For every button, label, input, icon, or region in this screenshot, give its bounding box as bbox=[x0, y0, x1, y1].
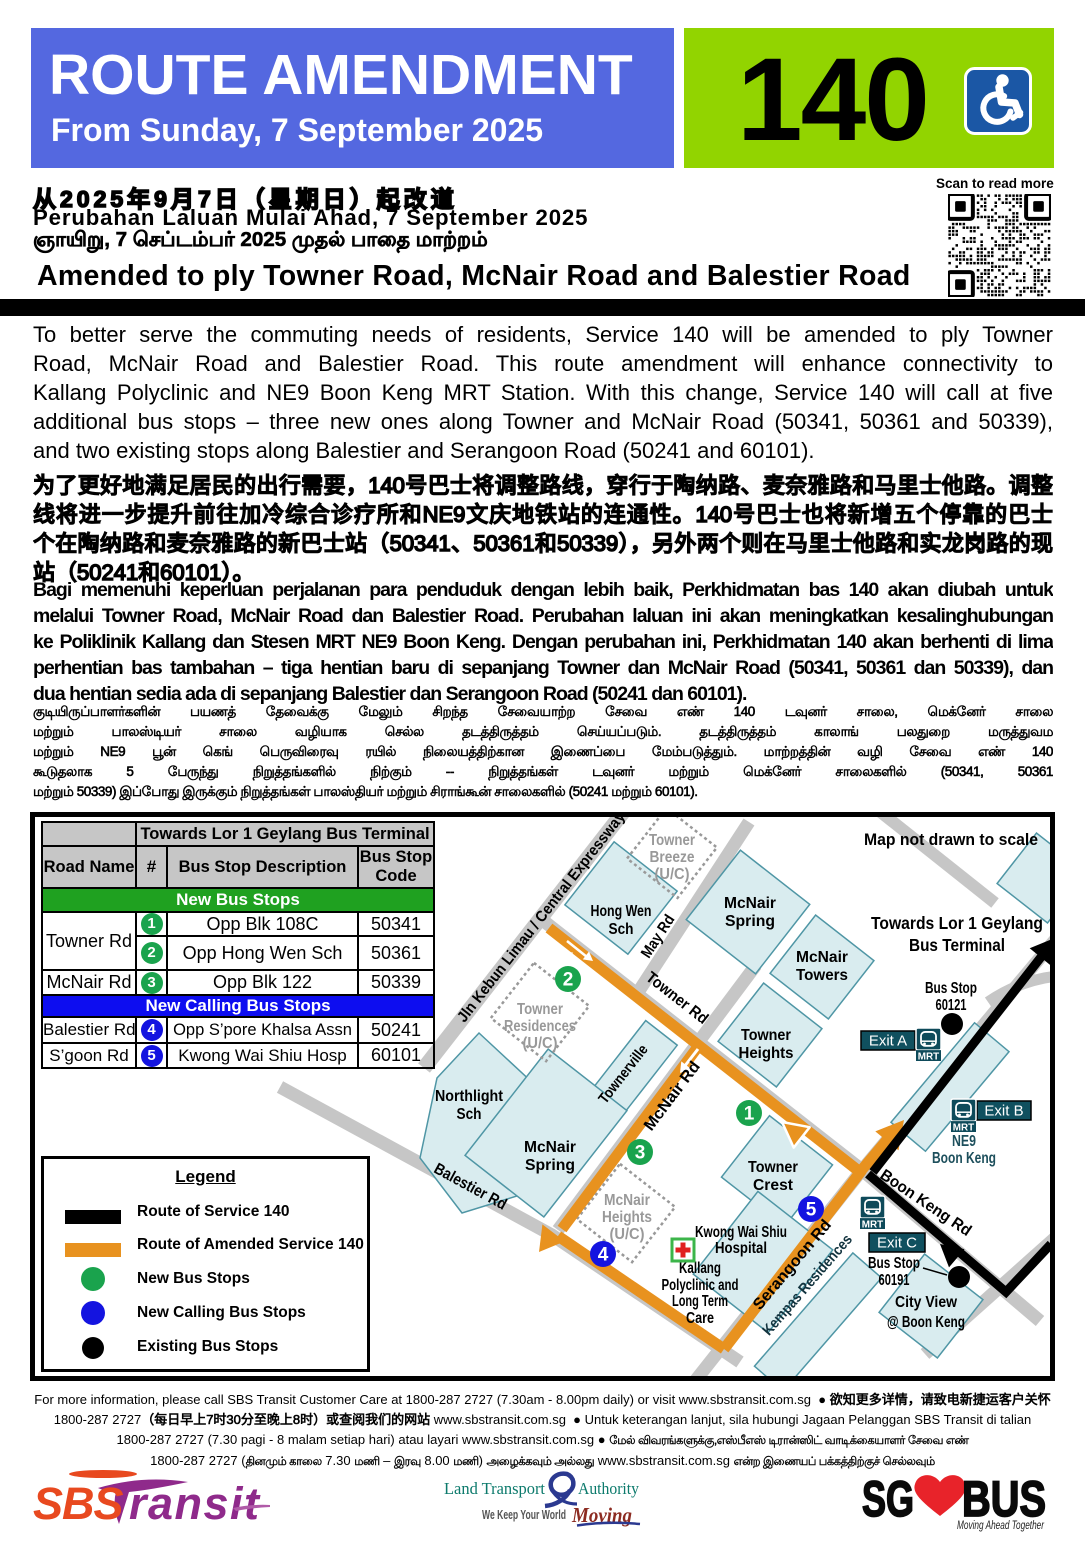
svg-text:Sch: Sch bbox=[457, 1106, 482, 1123]
svg-text:3: 3 bbox=[635, 1143, 646, 1164]
svg-text:1: 1 bbox=[744, 1104, 755, 1125]
svg-text:Towers: Towers bbox=[796, 967, 848, 984]
svg-text:Polyclinic and: Polyclinic and bbox=[662, 1277, 739, 1294]
svg-text:Long Term: Long Term bbox=[672, 1293, 728, 1310]
svg-text:@ Boon Keng: @ Boon Keng bbox=[887, 1314, 965, 1331]
svg-text:Authority: Authority bbox=[578, 1479, 640, 1498]
svg-text:Spring: Spring bbox=[725, 913, 775, 930]
svg-text:Towner: Towner bbox=[748, 1159, 798, 1176]
svg-text:ransit: ransit bbox=[129, 1478, 261, 1529]
svg-text:Care: Care bbox=[686, 1310, 714, 1327]
svg-text:Residences: Residences bbox=[504, 1018, 576, 1035]
svg-text:Towards Lor 1 Geylang: Towards Lor 1 Geylang bbox=[871, 913, 1043, 933]
svg-text:Heights: Heights bbox=[602, 1209, 652, 1226]
svg-text:5: 5 bbox=[806, 1200, 817, 1221]
svg-text:McNair: McNair bbox=[604, 1192, 650, 1209]
svg-text:McNair: McNair bbox=[524, 1139, 576, 1156]
svg-text:60121: 60121 bbox=[936, 997, 967, 1014]
svg-text:Kallang: Kallang bbox=[679, 1260, 721, 1277]
svg-text:MRT: MRT bbox=[953, 1122, 974, 1133]
svg-text:Boon Keng: Boon Keng bbox=[932, 1150, 996, 1167]
svg-text:Hong Wen: Hong Wen bbox=[591, 903, 652, 920]
svg-text:City View: City View bbox=[895, 1294, 958, 1311]
svg-text:McNair: McNair bbox=[796, 949, 848, 966]
svg-text:SBS: SBS bbox=[33, 1478, 124, 1529]
svg-text:Hospital: Hospital bbox=[715, 1240, 767, 1257]
svg-text:MRT: MRT bbox=[918, 1051, 939, 1062]
svg-text:Moving Ahead Together: Moving Ahead Together bbox=[957, 1520, 1045, 1532]
svg-text:(U/C): (U/C) bbox=[610, 1226, 645, 1243]
svg-text:Exit B: Exit B bbox=[984, 1103, 1023, 1120]
svg-text:Map not drawn to scale: Map not drawn to scale bbox=[864, 830, 1038, 849]
svg-text:MRT: MRT bbox=[862, 1219, 883, 1230]
svg-text:Land Transport: Land Transport bbox=[444, 1479, 545, 1498]
svg-text:SG: SG bbox=[862, 1471, 914, 1527]
svg-text:BUS: BUS bbox=[962, 1471, 1046, 1527]
svg-text:(U/C): (U/C) bbox=[523, 1035, 558, 1052]
svg-text:Sch: Sch bbox=[609, 921, 634, 938]
svg-text:Spring: Spring bbox=[525, 1157, 575, 1174]
svg-text:Bus Stop: Bus Stop bbox=[868, 1255, 920, 1272]
svg-text:Exit C: Exit C bbox=[877, 1235, 917, 1252]
svg-text:NE9: NE9 bbox=[952, 1133, 976, 1150]
svg-text:Northlight: Northlight bbox=[435, 1088, 503, 1105]
svg-text:Towner: Towner bbox=[649, 832, 695, 849]
svg-text:Towner: Towner bbox=[741, 1027, 791, 1044]
svg-text:(U/C): (U/C) bbox=[655, 866, 690, 883]
svg-text:Breeze: Breeze bbox=[650, 849, 695, 866]
svg-text:60191: 60191 bbox=[879, 1272, 910, 1289]
svg-text:Crest: Crest bbox=[753, 1177, 793, 1194]
svg-text:Bus Terminal: Bus Terminal bbox=[909, 935, 1005, 955]
svg-text:We Keep Your World: We Keep Your World bbox=[482, 1508, 566, 1522]
svg-text:2: 2 bbox=[563, 970, 574, 991]
svg-text:Towner: Towner bbox=[517, 1001, 563, 1018]
svg-text:4: 4 bbox=[598, 1245, 609, 1266]
svg-text:Kwong Wai Shiu: Kwong Wai Shiu bbox=[695, 1224, 787, 1241]
svg-text:Heights: Heights bbox=[739, 1045, 794, 1062]
svg-text:Exit A: Exit A bbox=[869, 1033, 907, 1050]
svg-text:McNair: McNair bbox=[724, 895, 776, 912]
svg-text:Bus Stop: Bus Stop bbox=[925, 980, 977, 997]
